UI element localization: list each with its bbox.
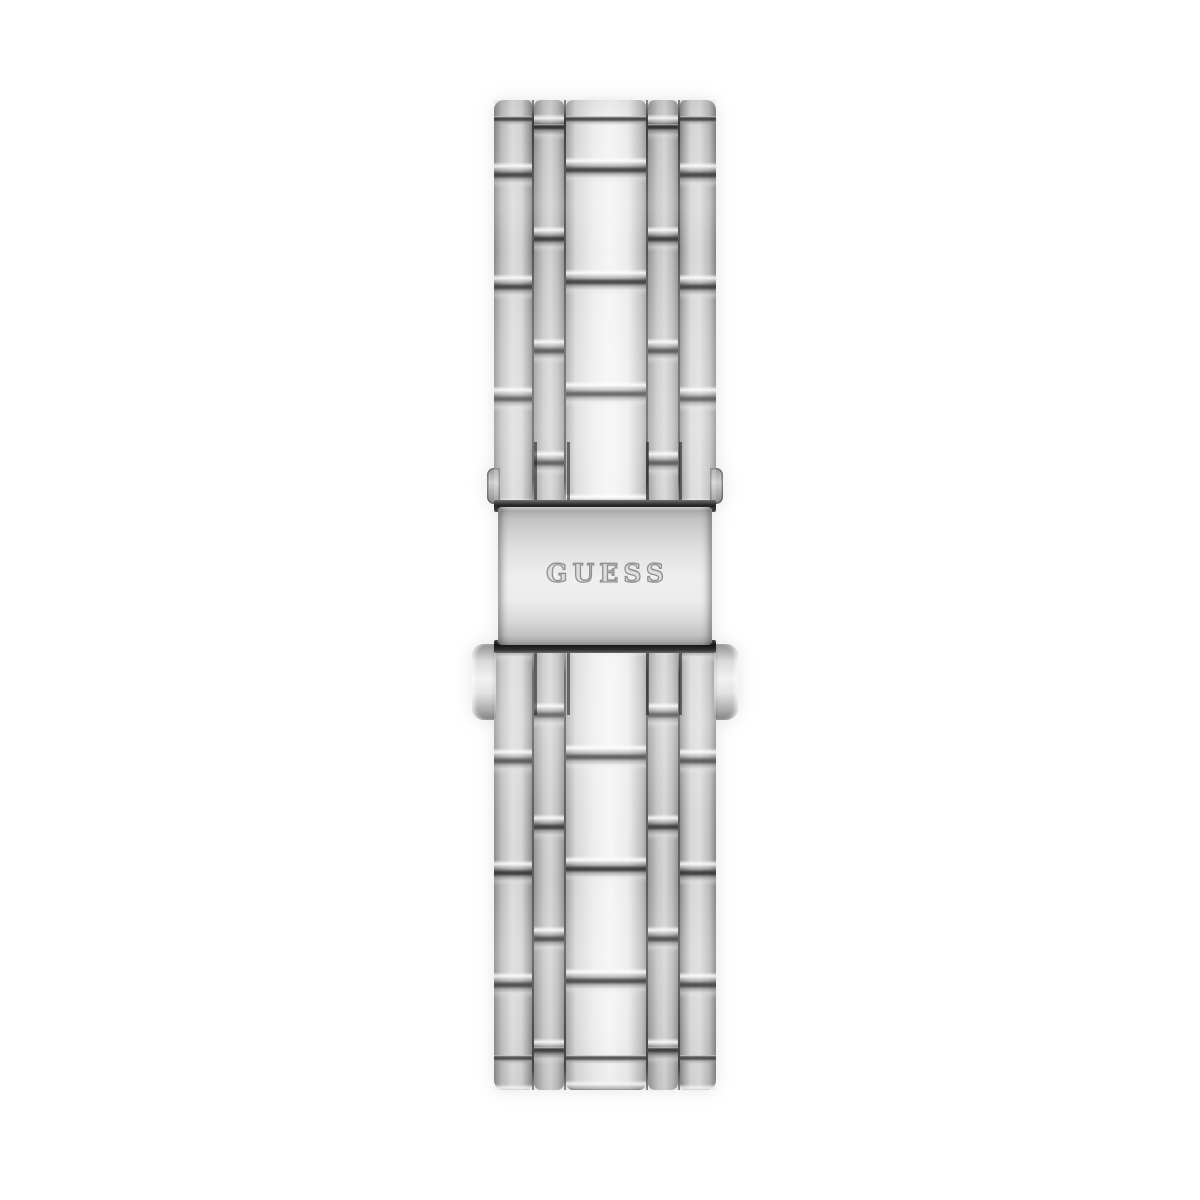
link-column-narrow-left [534, 653, 564, 1090]
link-column-narrow-right [648, 653, 678, 1090]
watch-bracelet-photo: GUESS [494, 100, 716, 1090]
link-column-outer-right [680, 100, 716, 500]
link-column-outer-left [494, 653, 532, 1090]
link-column-narrow-left [534, 100, 564, 500]
clasp-push-button-left [472, 644, 496, 720]
link-column-narrow-right [648, 100, 678, 500]
link-column-center [566, 653, 646, 1090]
link-column-outer-right [680, 653, 716, 1090]
link-column-center [566, 100, 646, 500]
clasp-plate: GUESS [498, 507, 712, 645]
clasp-push-button-right [714, 644, 738, 720]
brand-engraving-text: GUESS [541, 559, 669, 588]
link-column-outer-left [494, 100, 532, 500]
hinge-nub-top-right [710, 468, 723, 504]
hinge-nub-top-left [487, 468, 500, 504]
deployment-clasp: GUESS [494, 500, 716, 653]
band-lower-section [494, 653, 716, 1090]
band-upper-section [494, 100, 716, 500]
